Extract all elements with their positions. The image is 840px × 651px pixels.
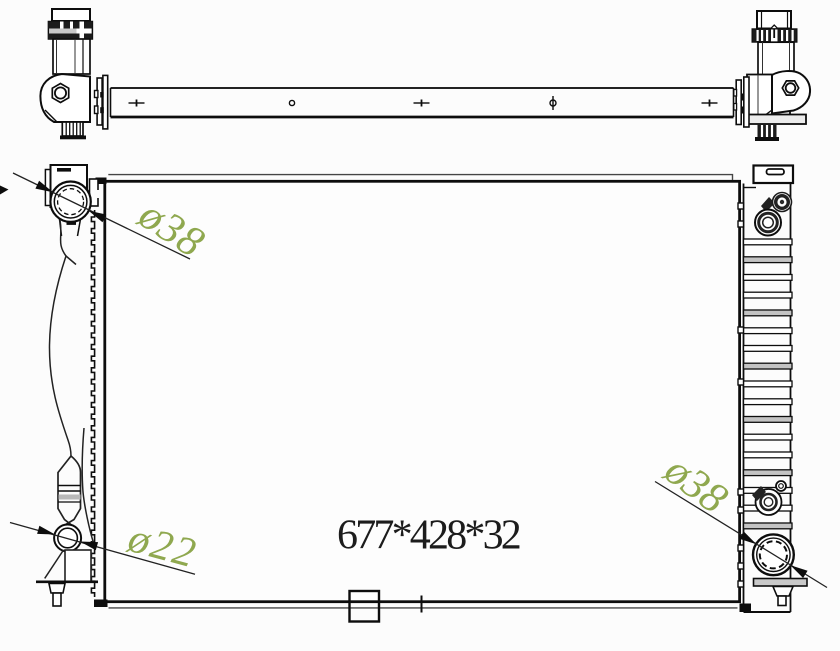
svg-text:677*428*32: 677*428*32 bbox=[337, 513, 520, 559]
